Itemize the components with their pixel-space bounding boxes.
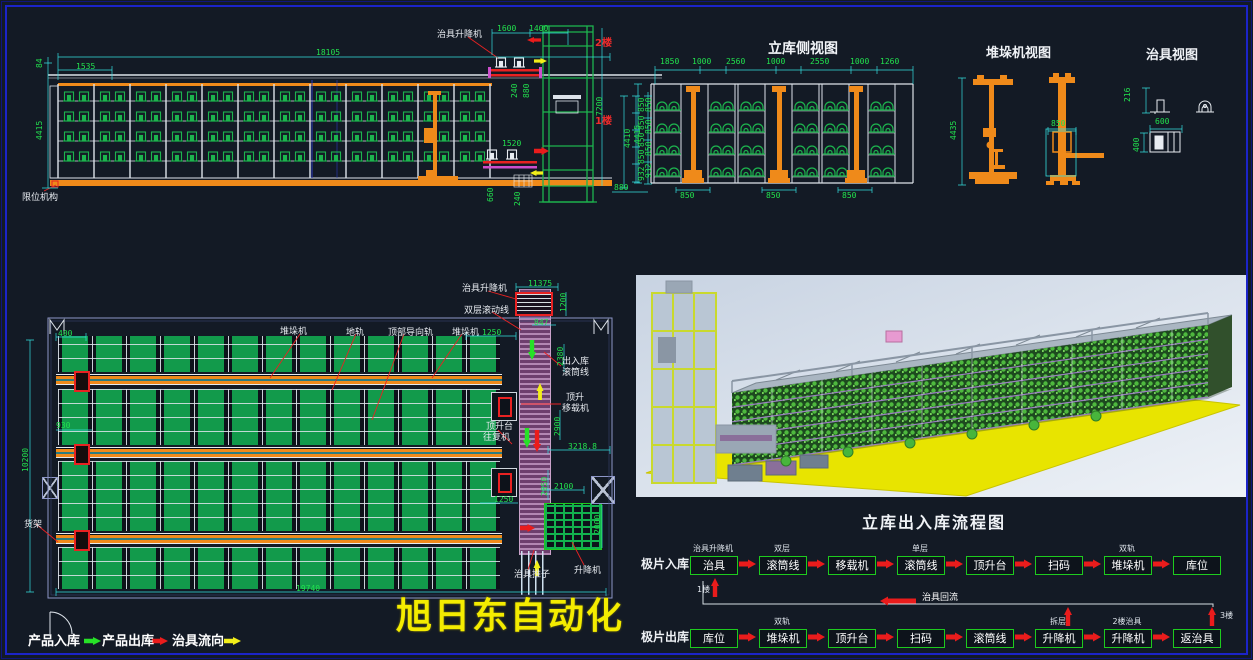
arrow-right [808, 560, 825, 569]
arrow-right [1015, 560, 1032, 569]
dim-text: 850 [766, 192, 780, 200]
dim-text: 932 [645, 164, 653, 178]
dim-text: 1535 [76, 63, 95, 71]
legend-jig-flow: 治具流向 [172, 634, 224, 650]
rack-bank [58, 461, 500, 531]
arrow-right [84, 637, 101, 645]
arrow-right [1015, 633, 1032, 642]
flow-box: 库位 [690, 629, 738, 648]
cad-label: 治具推子 [514, 571, 550, 581]
flow-box: 升降机 [1104, 629, 1152, 648]
stacker-crane-plan [845, 86, 867, 183]
dim-text: 850 [842, 192, 856, 200]
cad-label: 顶部导向轨 [388, 329, 433, 339]
transfer-station [491, 392, 517, 421]
arrow-right [224, 637, 241, 645]
dim-text: 3218.8 [568, 443, 597, 451]
jig-lifter-tower [539, 26, 597, 202]
dim-text: 880 [523, 84, 531, 98]
crane-rail [56, 533, 502, 544]
cad-label: 1楼 [595, 116, 612, 127]
dim-text: 19740 [296, 585, 320, 593]
dim-text: 2000 [594, 515, 602, 534]
flow-outbound-head: 极片出库 [641, 631, 689, 643]
stacker-crane-plan [682, 86, 704, 183]
jig-lifter-plan [515, 292, 553, 316]
flow-box: 治具 [690, 556, 738, 575]
dim-text: 4435 [950, 121, 958, 140]
cad-label: 顶升台 [486, 423, 513, 433]
cad-label: 升降机 [574, 567, 601, 577]
dim-text: 240 [511, 84, 519, 98]
dim-text: 880 [614, 184, 628, 192]
cad-label: 往复机 [483, 434, 510, 444]
arrow-right [1084, 633, 1101, 642]
dim-text: 4415 [36, 121, 44, 140]
flow-box: 移载机 [828, 556, 876, 575]
dim-text: 660 [487, 188, 495, 202]
cad-label: 治具升降机 [437, 31, 482, 41]
cad-label: 治具升降机 [462, 285, 507, 295]
cad-label: 地轨 [346, 329, 364, 339]
transfer-station [491, 468, 517, 497]
cad-label: 货架 [24, 521, 42, 531]
cad-label: 双层滚动线 [464, 307, 509, 317]
dim-text: 2100 [554, 483, 573, 491]
arrow-left [530, 170, 543, 176]
stacker-view-title: 堆垛机视图 [986, 42, 1051, 61]
flow-step-note: 2楼治具 [1097, 618, 1157, 626]
dim-text: 850 [645, 120, 653, 134]
floor-note: 1楼 [697, 586, 710, 594]
dim-text: 400 [1133, 138, 1141, 152]
cad-label: 2楼 [595, 38, 612, 49]
flow-step-note: 双层 [752, 545, 812, 553]
arrow-left [880, 597, 916, 606]
flow-inbound-head: 极片入库 [641, 558, 689, 570]
rack-bank [58, 336, 500, 372]
flow-box: 升降机 [1035, 629, 1083, 648]
arrow-right [534, 147, 549, 155]
flow-box: 顶升台 [966, 556, 1014, 575]
stacker-crane-front-view [969, 75, 1017, 184]
elevation-rack-jigs [58, 84, 490, 178]
dim-text: 4415 [634, 125, 642, 144]
dim-text: 1600 [497, 25, 516, 33]
arrow-right [739, 633, 756, 642]
cad-label: 堆垛机 [452, 329, 479, 339]
dim-text: 1250 [482, 329, 501, 337]
stacker-crane-plan [768, 86, 790, 183]
watermark: 旭日东自动化 [396, 597, 624, 637]
crane-rail [56, 447, 502, 458]
dim-text: 850 [680, 192, 694, 200]
arrow-right [152, 637, 168, 645]
dim-text: 11375 [528, 280, 552, 288]
rail-dock [74, 371, 90, 392]
legend-product-out: 产品出库 [102, 634, 154, 650]
dim-text: 2850 [541, 477, 549, 496]
arrow-right [808, 633, 825, 642]
dim-text: 850 [645, 142, 653, 156]
cad-label: 滚筒线 [562, 369, 589, 379]
rack-bank [58, 389, 500, 445]
jig-profiles [1150, 100, 1214, 152]
rack-bank [58, 547, 500, 589]
dim-text: 850 [1051, 120, 1065, 128]
dim-text: 1000 [766, 58, 785, 66]
floor1-station [483, 150, 537, 187]
arrow-right [1084, 560, 1101, 569]
dim-text: 7200 [596, 97, 604, 116]
cad-label: 出入库 [562, 358, 589, 368]
arrow-right [534, 58, 547, 64]
dim-text: 1520 [502, 140, 521, 148]
dim-text: 1000 [692, 58, 711, 66]
dim-text: 1000 [850, 58, 869, 66]
dim-text: 2380 [557, 347, 565, 366]
dim-text: 2550 [810, 58, 829, 66]
flow-step-note: 双轨 [752, 618, 812, 626]
flow-box: 库位 [1173, 556, 1221, 575]
flowchart-title: 立库出入库流程图 [862, 509, 1006, 533]
arrow-right [739, 560, 756, 569]
flow-step-note: 拆层 [1028, 618, 1088, 626]
dim-text: 600 [1155, 118, 1169, 126]
dim-text: 850 [645, 98, 653, 112]
flow-box: 滚筒线 [966, 629, 1014, 648]
rail-dock [74, 530, 90, 551]
arrow-right [946, 560, 963, 569]
column-symbol [42, 477, 58, 499]
arrow-right [877, 633, 894, 642]
dim-text: 2560 [726, 58, 745, 66]
legend-product-in: 产品入库 [28, 634, 80, 650]
cad-label: 限位机构 [22, 194, 58, 204]
flow-step-note: 单层 [890, 545, 950, 553]
flow-step-note: 双轨 [1097, 545, 1157, 553]
flow-box: 堆垛机 [759, 629, 807, 648]
cad-canvas: 立库侧视图 堆垛机视图 治具视图 立库出入库流程图 产品入库 产品出库 治具流向… [0, 0, 1253, 660]
flow-box: 顶升台 [828, 629, 876, 648]
dim-text: 1260 [880, 58, 899, 66]
flow-box: 堆垛机 [1104, 556, 1152, 575]
arrow-right [1153, 633, 1170, 642]
dim-text: 400 [58, 330, 72, 338]
dim-text: 4410 [624, 129, 632, 148]
cad-label: 堆垛机 [280, 328, 307, 338]
flow-box: 扫码 [1035, 556, 1083, 575]
dim-text: 1400 [529, 25, 548, 33]
arrow-left [527, 37, 541, 43]
jig-view-title: 治具视图 [1146, 44, 1198, 63]
crane-rail [56, 374, 502, 385]
dim-text: 930 [56, 422, 70, 430]
dim-text: 1200 [560, 293, 568, 312]
flow-box: 返治具 [1173, 629, 1221, 648]
dim-text: 847 [534, 319, 548, 327]
dim-text: 1250 [494, 496, 513, 504]
flow-box: 滚筒线 [897, 556, 945, 575]
dim-text: 2900 [554, 417, 562, 436]
side-view-racks [654, 84, 895, 183]
side-view-title: 立库侧视图 [768, 38, 838, 58]
arrow-up [711, 578, 719, 597]
jig-return-label: 治具回流 [922, 594, 958, 603]
flow-step-note: 治具升降机 [683, 545, 743, 553]
dim-text: 240 [514, 192, 522, 206]
floor2-station [488, 58, 542, 78]
dim-text: 1850 [660, 58, 679, 66]
dim-text: 10200 [22, 448, 30, 472]
arrow-right [877, 560, 894, 569]
column-symbol [591, 476, 615, 504]
arrow-right [946, 633, 963, 642]
rail-dock [74, 444, 90, 465]
stacker-crane-side-view [1046, 73, 1104, 185]
elevation-crane [418, 91, 458, 182]
arrow-up [1208, 607, 1216, 626]
dim-text: 216 [1124, 88, 1132, 102]
cad-label: 移载机 [562, 405, 589, 415]
flow-box: 滚筒线 [759, 556, 807, 575]
cad-label: 顶升 [566, 394, 584, 404]
flow-box: 扫码 [897, 629, 945, 648]
floor-note: 3楼 [1220, 612, 1233, 620]
render-3d [636, 275, 1246, 497]
dim-text: 18105 [316, 49, 340, 57]
arrow-right [1153, 560, 1170, 569]
dim-text: 84 [36, 58, 44, 68]
